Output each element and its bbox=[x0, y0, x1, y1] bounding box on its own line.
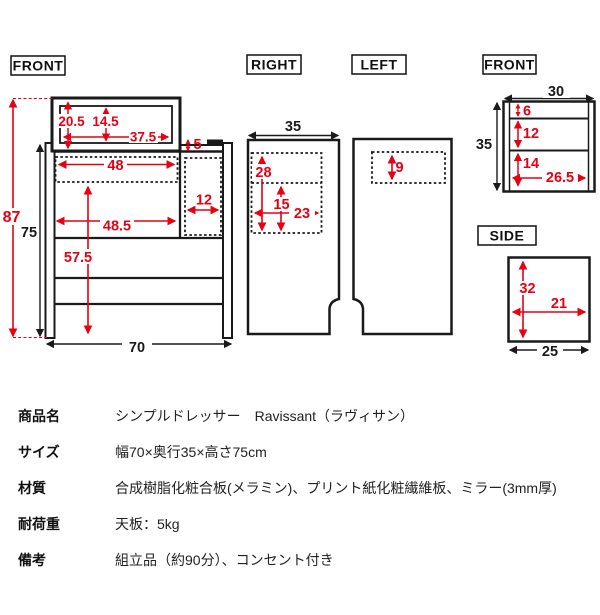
right-side-panel bbox=[223, 143, 232, 338]
dim-drawerbox-width: 30 bbox=[548, 84, 564, 100]
view-label-right: RIGHT bbox=[247, 55, 301, 74]
dimension-diagram: FRONT 87 75 bbox=[0, 0, 600, 395]
dim-side-depth: 25 bbox=[510, 344, 588, 360]
dim-drawer-inner-width: 26.5 bbox=[546, 170, 574, 186]
dim-side-compartment-width: 12 bbox=[196, 193, 212, 209]
spec-value: 天板：5kg bbox=[115, 513, 590, 536]
view-label-left: LEFT bbox=[352, 55, 406, 74]
dim-open-space-height: 57.5 bbox=[61, 187, 95, 333]
dim-right-inner-depth: 23 bbox=[294, 206, 310, 222]
dim-drawer-middle-row: 12 bbox=[523, 126, 539, 142]
spec-label: サイズ bbox=[18, 441, 115, 464]
view-label-front-drawers: FRONT bbox=[483, 55, 536, 74]
left-view: LEFT 9 bbox=[352, 55, 452, 334]
dim-top-compartment-width: 48 bbox=[107, 158, 123, 174]
dim-open-space-width: 48.5 bbox=[57, 218, 175, 235]
dim-outlet-ledge-height: 5 bbox=[193, 137, 201, 153]
side-view: SIDE 32 21 25 bbox=[478, 226, 590, 360]
spec-value: 幅70×奥行35×高さ75cm bbox=[115, 441, 590, 464]
view-label-side: SIDE bbox=[478, 226, 536, 245]
dim-open-space-width: 48.5 bbox=[103, 219, 131, 235]
spec-value: 合成樹脂化粧合板(メラミン)、プリント紙化粧繊維板、ミラー(3mm厚) bbox=[115, 477, 590, 500]
spec-row-load-capacity: 耐荷重 天板：5kg bbox=[18, 513, 590, 536]
outlet-icon bbox=[207, 140, 223, 146]
dim-total-width-70: 70 bbox=[47, 339, 231, 356]
spec-row-material: 材質 合成樹脂化粧合板(メラミン)、プリント紙化粧繊維板、ミラー(3mm厚) bbox=[18, 477, 590, 500]
spec-row-size: サイズ 幅70×奥行35×高さ75cm bbox=[18, 441, 590, 464]
product-dimension-sheet: FRONT 87 75 bbox=[0, 0, 600, 615]
right-view: RIGHT 35 28 15 23 bbox=[247, 55, 339, 334]
dim-drawer-top-row: 6 bbox=[523, 104, 531, 120]
spec-value: 組立品（約90分）、コンセント付き bbox=[115, 549, 590, 572]
dim-drawer-bottom-row: 14 bbox=[523, 156, 539, 172]
dim-right-upper-height: 28 bbox=[255, 165, 271, 181]
dim-side-depth: 25 bbox=[542, 344, 558, 360]
spec-label: 備考 bbox=[18, 549, 115, 572]
dim-left-slot-height: 9 bbox=[395, 160, 403, 176]
dim-top-compartment-width: 48 bbox=[59, 158, 174, 174]
dim-side-inner-width: 21 bbox=[551, 296, 567, 312]
dim-body-height-75: 75 bbox=[19, 145, 40, 336]
dim-right-depth: 35 bbox=[285, 119, 301, 135]
dim-right-lower-height: 15 bbox=[273, 197, 289, 213]
dim-mirror-height: 14.5 bbox=[92, 114, 119, 129]
front-main-view: FRONT 87 75 bbox=[2, 56, 232, 356]
front-drawers-label: FRONT bbox=[484, 57, 535, 73]
front-drawers-view: FRONT 30 35 6 12 14 bbox=[473, 55, 595, 192]
left-label: LEFT bbox=[361, 57, 398, 73]
spec-value: シンプルドレッサー Ravissant（ラヴィサン） bbox=[115, 405, 590, 428]
spec-label: 材質 bbox=[18, 477, 115, 500]
spec-label: 商品名 bbox=[18, 405, 115, 428]
dim-side-compartment-width: 12 bbox=[188, 192, 218, 210]
right-label: RIGHT bbox=[251, 57, 297, 73]
spec-row-product-name: 商品名 シンプルドレッサー Ravissant（ラヴィサン） bbox=[18, 405, 590, 428]
spec-row-notes: 備考 組立品（約90分）、コンセント付き bbox=[18, 549, 590, 572]
dim-mirror-width: 37.5 bbox=[130, 130, 157, 145]
front-main-label: FRONT bbox=[13, 58, 64, 74]
view-label-front-main: FRONT bbox=[11, 56, 65, 75]
left-side-panel bbox=[46, 143, 55, 338]
spec-table: 商品名 シンプルドレッサー Ravissant（ラヴィサン） サイズ 幅70×奥… bbox=[18, 405, 590, 585]
dim-drawerbox-width: 30 bbox=[505, 84, 593, 100]
dim-drawerbox-height: 35 bbox=[476, 137, 492, 153]
dim-side-inner-height: 32 bbox=[519, 281, 535, 297]
dim-mirror-frame-height: 20.5 bbox=[58, 114, 85, 129]
spec-label: 耐荷重 bbox=[18, 513, 115, 536]
dim-body-height: 75 bbox=[21, 225, 37, 241]
side-label: SIDE bbox=[490, 228, 525, 244]
dim-total-width: 70 bbox=[129, 340, 145, 356]
side-box bbox=[509, 258, 590, 342]
dim-drawerbox-height: 35 bbox=[473, 103, 497, 190]
dim-open-space-height: 57.5 bbox=[64, 250, 92, 266]
dim-total-height: 87 bbox=[3, 209, 21, 226]
dim-right-depth: 35 bbox=[249, 119, 338, 136]
